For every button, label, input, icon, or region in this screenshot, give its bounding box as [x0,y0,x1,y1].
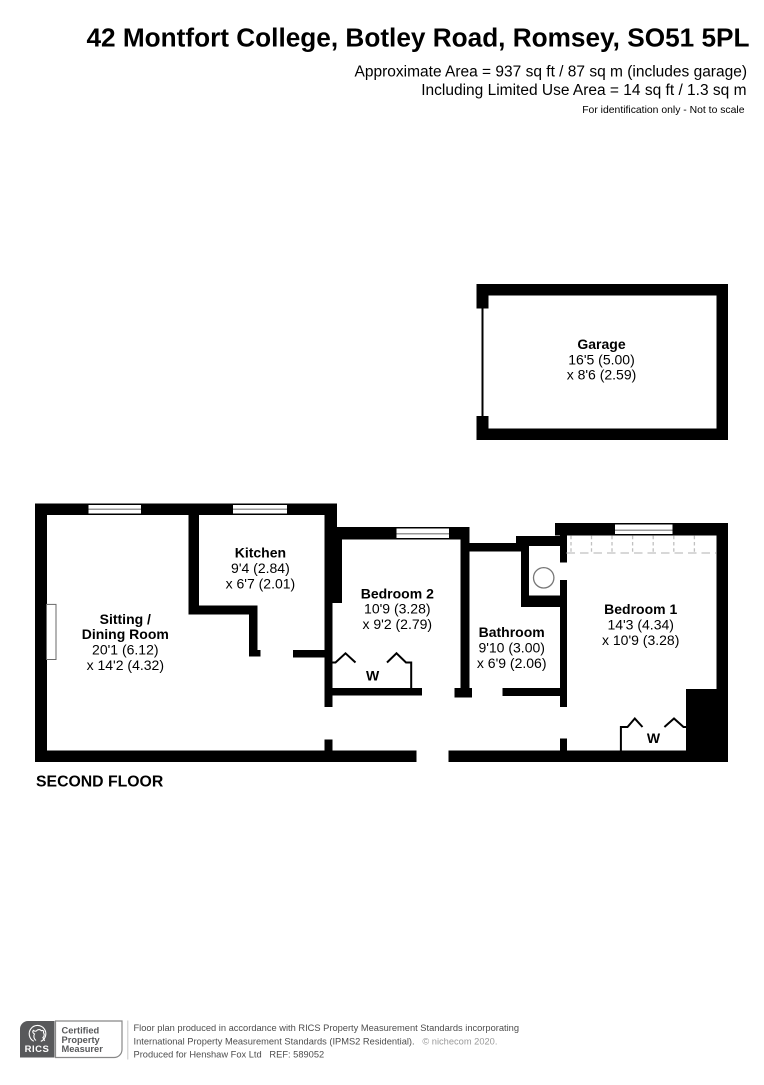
svg-text:Floor plan produced in accorda: Floor plan produced in accordance with R… [134,1023,520,1033]
svg-text:Bedroom 1: Bedroom 1 [604,601,677,617]
svg-text:Measurer: Measurer [62,1044,104,1054]
svg-text:Garage: Garage [577,336,625,352]
svg-text:x 9'2 (2.79): x 9'2 (2.79) [362,616,432,632]
svg-text:Approximate Area = 937 sq ft /: Approximate Area = 937 sq ft / 87 sq m (… [355,64,747,81]
svg-text:x 6'7 (2.01): x 6'7 (2.01) [226,575,296,591]
svg-text:For identification only - Not: For identification only - Not to scale [582,105,745,116]
svg-text:x 6'9 (2.06): x 6'9 (2.06) [477,655,547,671]
svg-text:x 14'2 (4.32): x 14'2 (4.32) [87,657,164,673]
svg-text:RICS: RICS [25,1044,50,1055]
svg-text:Bedroom 2: Bedroom 2 [361,585,434,601]
svg-text:42 Montfort College, Botley Ro: 42 Montfort College, Botley Road, Romsey… [86,23,749,53]
svg-text:x 10'9 (3.28): x 10'9 (3.28) [602,632,679,648]
svg-text:Including Limited Use Area = 1: Including Limited Use Area = 14 sq ft / … [421,82,746,99]
svg-text:x 8'6 (2.59): x 8'6 (2.59) [567,367,637,383]
svg-text:Produced for Henshaw Fox Ltd: Produced for Henshaw Fox Ltd REF: 589052 [134,1050,325,1060]
svg-text:Sitting /: Sitting / [100,611,151,627]
svg-text:20'1 (6.12): 20'1 (6.12) [92,642,159,658]
svg-text:International Property Measure: International Property Measurement Stand… [134,1036,498,1046]
svg-text:Kitchen: Kitchen [235,545,286,561]
svg-text:9'10 (3.00): 9'10 (3.00) [478,640,545,656]
svg-text:10'9 (3.28): 10'9 (3.28) [364,601,431,617]
svg-text:SECOND FLOOR: SECOND FLOOR [36,774,164,791]
svg-text:Bathroom: Bathroom [479,624,545,640]
svg-text:9'4 (2.84): 9'4 (2.84) [231,560,290,576]
svg-text:16'5 (5.00): 16'5 (5.00) [568,351,635,367]
svg-text:W: W [366,668,380,684]
svg-text:W: W [647,730,661,746]
svg-text:14'3 (4.34): 14'3 (4.34) [607,617,674,633]
svg-text:Dining Room: Dining Room [82,626,169,642]
